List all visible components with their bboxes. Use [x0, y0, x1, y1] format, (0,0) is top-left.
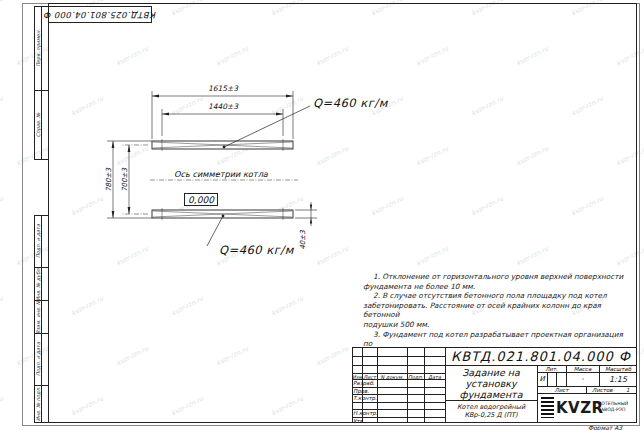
- row-prov: Пров.: [353, 388, 369, 394]
- dim-rail-height: 40±3: [297, 225, 309, 255]
- kvzr-logo-icon: [541, 397, 554, 418]
- axis-symmetry-label: Ось симметрии котла: [158, 169, 284, 179]
- note-line: подушки 500 мм.: [363, 320, 629, 330]
- load-label-bottom: Q=460 кг/м: [219, 243, 294, 257]
- doc-number: КВТД.021.801.04.000 Ф: [445, 349, 637, 364]
- frame-cell-inv-dubl: Инв. № дубл.: [34, 267, 42, 300]
- frame-cell-podp-data-1: Подп. и дата: [34, 215, 42, 267]
- frame-cell-inv-podl: Инв. № подл.: [34, 385, 42, 423]
- dim-length-inner: 1440±3: [196, 102, 250, 111]
- frame-cell-podp-data-2: Подп. и дата: [34, 333, 42, 385]
- top-reference-number: КВТД.025.801.04.000 Ф: [44, 10, 156, 20]
- doc-title: Задание на установку фундамента: [445, 367, 537, 400]
- load-label-top: Q=460 кг/м: [313, 96, 388, 110]
- level-mark: 0,000: [184, 193, 218, 206]
- frame-cell-vzam-inv: Взам. инв. №: [34, 300, 42, 333]
- sheet-label: Лист: [537, 387, 586, 393]
- sheets-value: 1: [626, 387, 630, 393]
- format-note: Формат А3: [588, 424, 622, 430]
- product-name: Котел водогрейный КВр-0,25 Д (ПТ): [445, 403, 537, 419]
- row-utv: Утв.: [353, 418, 365, 424]
- frame-cell-perv-primen: Перв. примен.: [34, 6, 42, 90]
- rev-col-podp: Подп.: [407, 374, 424, 380]
- row-nkontr: Н.контр.: [353, 410, 378, 416]
- top-reference-stamp: КВТД.025.801.04.000 Ф: [48, 6, 152, 23]
- note-line: фундамента не более 10 мм.: [363, 282, 629, 292]
- scale-label: Масштаб: [599, 366, 637, 372]
- frame-cell-sprav-n: Справ. №: [34, 90, 42, 160]
- note-line: забетонировать. Расстояние от осей крайн…: [363, 301, 629, 320]
- lit-value: И: [537, 375, 547, 383]
- rev-col-ndokum: N докум.: [377, 374, 407, 380]
- rev-col-data: Дата: [424, 374, 445, 380]
- technical-notes: 1. Отклонение от горизонтального уровня …: [363, 272, 629, 358]
- scale-value: 1:15: [599, 375, 637, 384]
- lit-label: Лит.: [537, 366, 566, 372]
- title-block: Изм. Лист N докум. Подп. Дата Разраб. Пр…: [352, 347, 637, 423]
- note-line: 3. Фундамент под котел разрабатывает про…: [363, 330, 629, 349]
- note-line: 2. В случае отсутствия бетонного пола пл…: [363, 291, 629, 301]
- sheets-label: Листов: [592, 387, 613, 393]
- row-tkontr: Т.контр.: [353, 395, 377, 401]
- note-line: 1. Отклонение от горизонтального уровня …: [363, 272, 629, 282]
- drawing-sheet: kvzr-rzn.rukvzr-rzn.rukvzr-rzn.rukvzr-rz…: [0, 0, 644, 430]
- kvzr-logo-text: KVZR: [556, 399, 604, 417]
- mass-value: -: [566, 375, 599, 383]
- kvzr-logo-sub: КОТЕЛЬНЫЙ ЗАВОД-РЭП: [598, 401, 628, 413]
- dim-length-outer: 1615±3: [196, 84, 250, 93]
- mass-label: Масса: [566, 366, 599, 372]
- dim-height-inner: 700±3: [119, 160, 131, 200]
- row-razrab: Разраб.: [353, 380, 375, 386]
- dim-height-outer: 780±3: [103, 160, 115, 200]
